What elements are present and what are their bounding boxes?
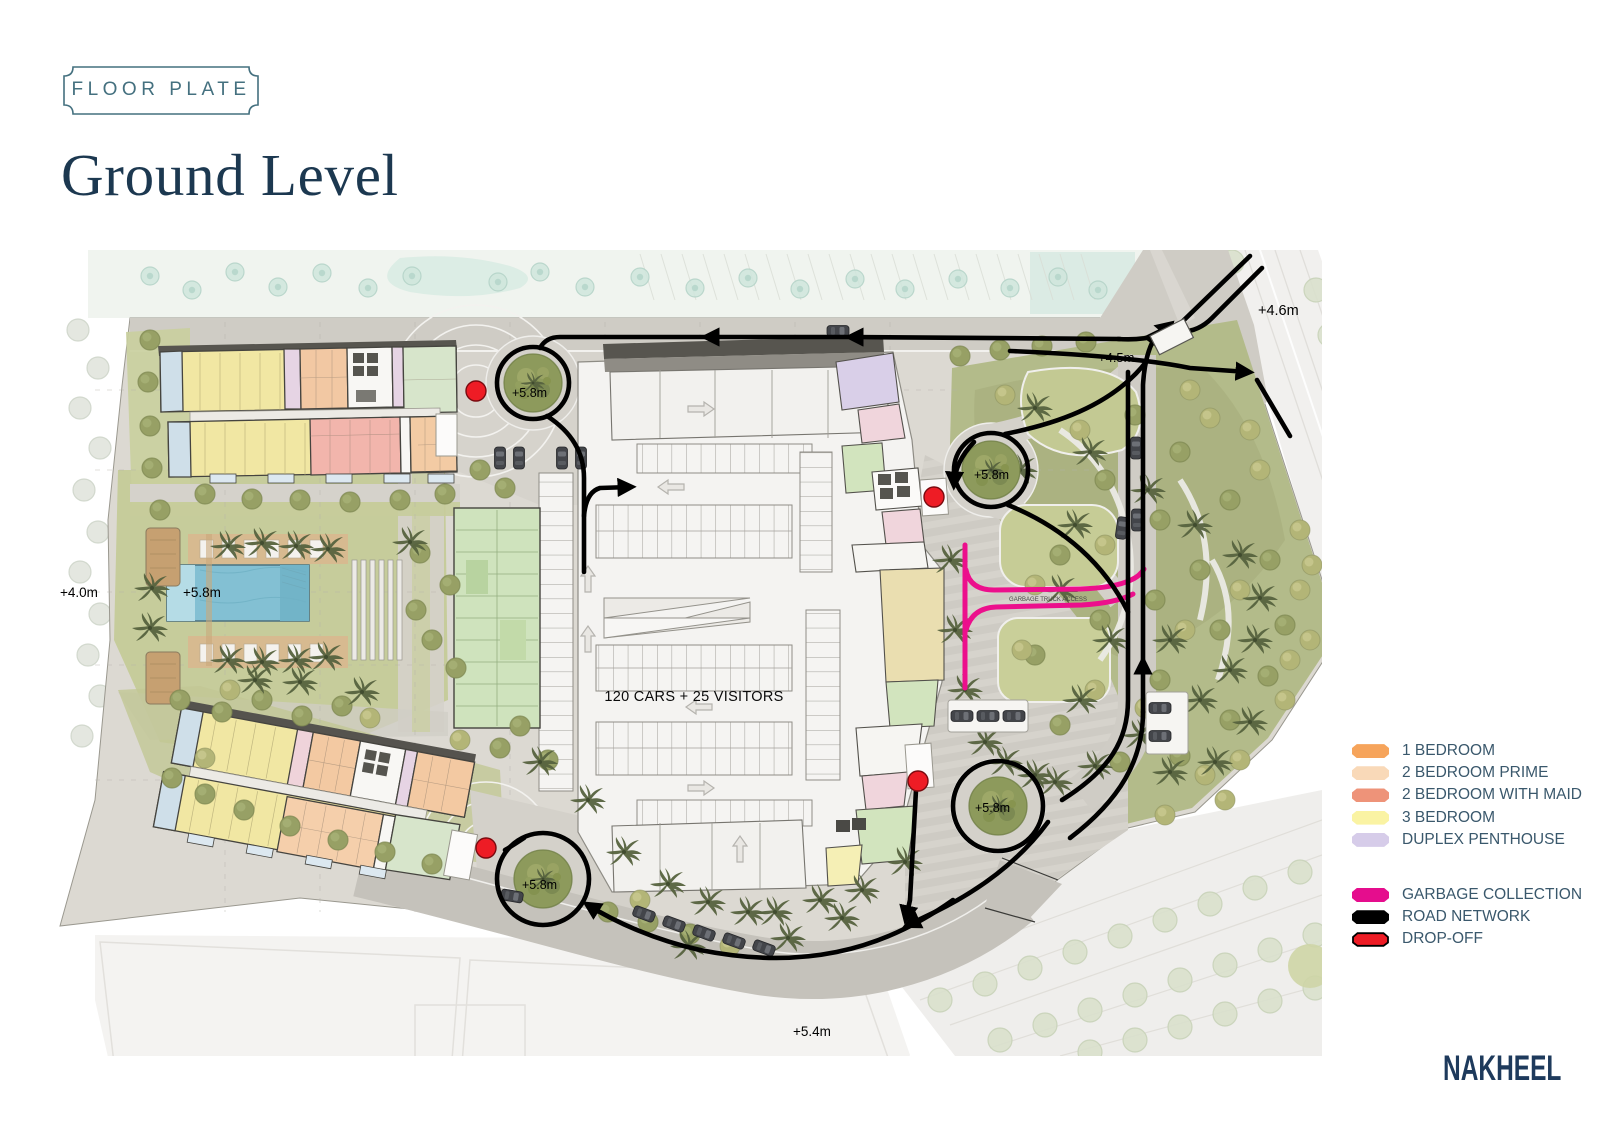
svg-text:+5.8m: +5.8m — [183, 585, 221, 600]
svg-text:+5.8m: +5.8m — [975, 801, 1010, 815]
svg-text:120 CARS + 25 VISITORS: 120 CARS + 25 VISITORS — [604, 689, 783, 705]
svg-text:+4.5m: +4.5m — [1098, 350, 1135, 365]
svg-text:+5.8m: +5.8m — [512, 386, 547, 400]
svg-text:+4.6m: +4.6m — [1258, 303, 1299, 319]
svg-text:+5.4m: +5.4m — [793, 1024, 831, 1039]
svg-text:+5.8m: +5.8m — [974, 468, 1009, 482]
svg-text:GARBAGE TRUCK ACCESS: GARBAGE TRUCK ACCESS — [1009, 597, 1087, 603]
svg-text:+4.0m: +4.0m — [60, 585, 98, 600]
svg-text:+5.8m: +5.8m — [522, 878, 557, 892]
